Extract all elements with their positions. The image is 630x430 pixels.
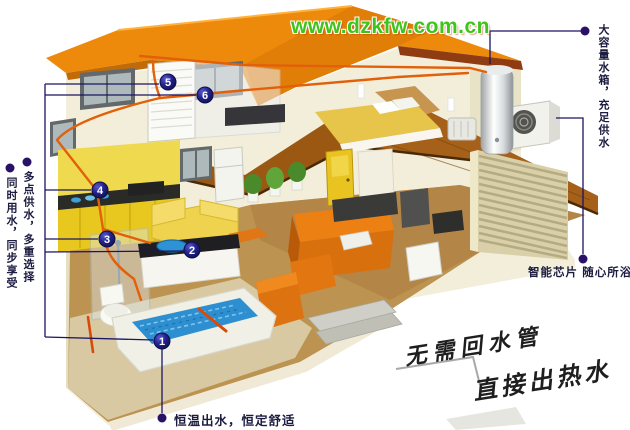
callout-bottom: 恒温出水，恒定舒适: [174, 410, 296, 429]
svg-text:2: 2: [189, 245, 195, 257]
wall-radiator: [448, 118, 476, 140]
svg-text:6: 6: [202, 90, 208, 102]
fridge: [214, 147, 244, 202]
svg-text:5: 5: [165, 77, 171, 89]
svg-text:3: 3: [104, 234, 110, 246]
stone-slab: [446, 407, 526, 430]
callout-right-bottom: 智能芯片 随心所浴: [528, 264, 630, 280]
marker-badge-3: 3: [99, 231, 115, 247]
marker-badge-2: 2: [184, 242, 200, 258]
svg-text:4: 4: [97, 185, 104, 197]
marker-badge-4: 4: [92, 182, 108, 198]
marker-badge-1: 1: [154, 333, 170, 349]
bullet-icon: [581, 27, 590, 36]
utility-cabinet: [148, 60, 285, 142]
callout-left-bottom: 同时用水，同步享受: [3, 177, 19, 290]
promo-diagram-house-hot-water-system: 1 2 3 4 5 6 www.dzkfw.com.cn 多点供水，多重选择 同…: [0, 0, 630, 430]
water-heater-tank: [481, 65, 513, 154]
callout-left-top: 多点供水，多重选择: [20, 171, 36, 284]
bullet-icon: [23, 158, 32, 167]
bullet-icon: [6, 164, 15, 173]
bullet-icon: [579, 255, 588, 264]
bullet-icon: [158, 414, 167, 423]
marker-badge-6: 6: [197, 87, 213, 103]
callout-right-top: 大容量水箱，充足供水: [595, 24, 611, 149]
marker-badge-5: 5: [160, 74, 176, 90]
watermark-url: www.dzkfw.com.cn: [291, 15, 490, 39]
outdoor-ac-unit: [510, 101, 560, 149]
louver-shutter: [470, 150, 568, 260]
svg-text:1: 1: [159, 336, 165, 348]
